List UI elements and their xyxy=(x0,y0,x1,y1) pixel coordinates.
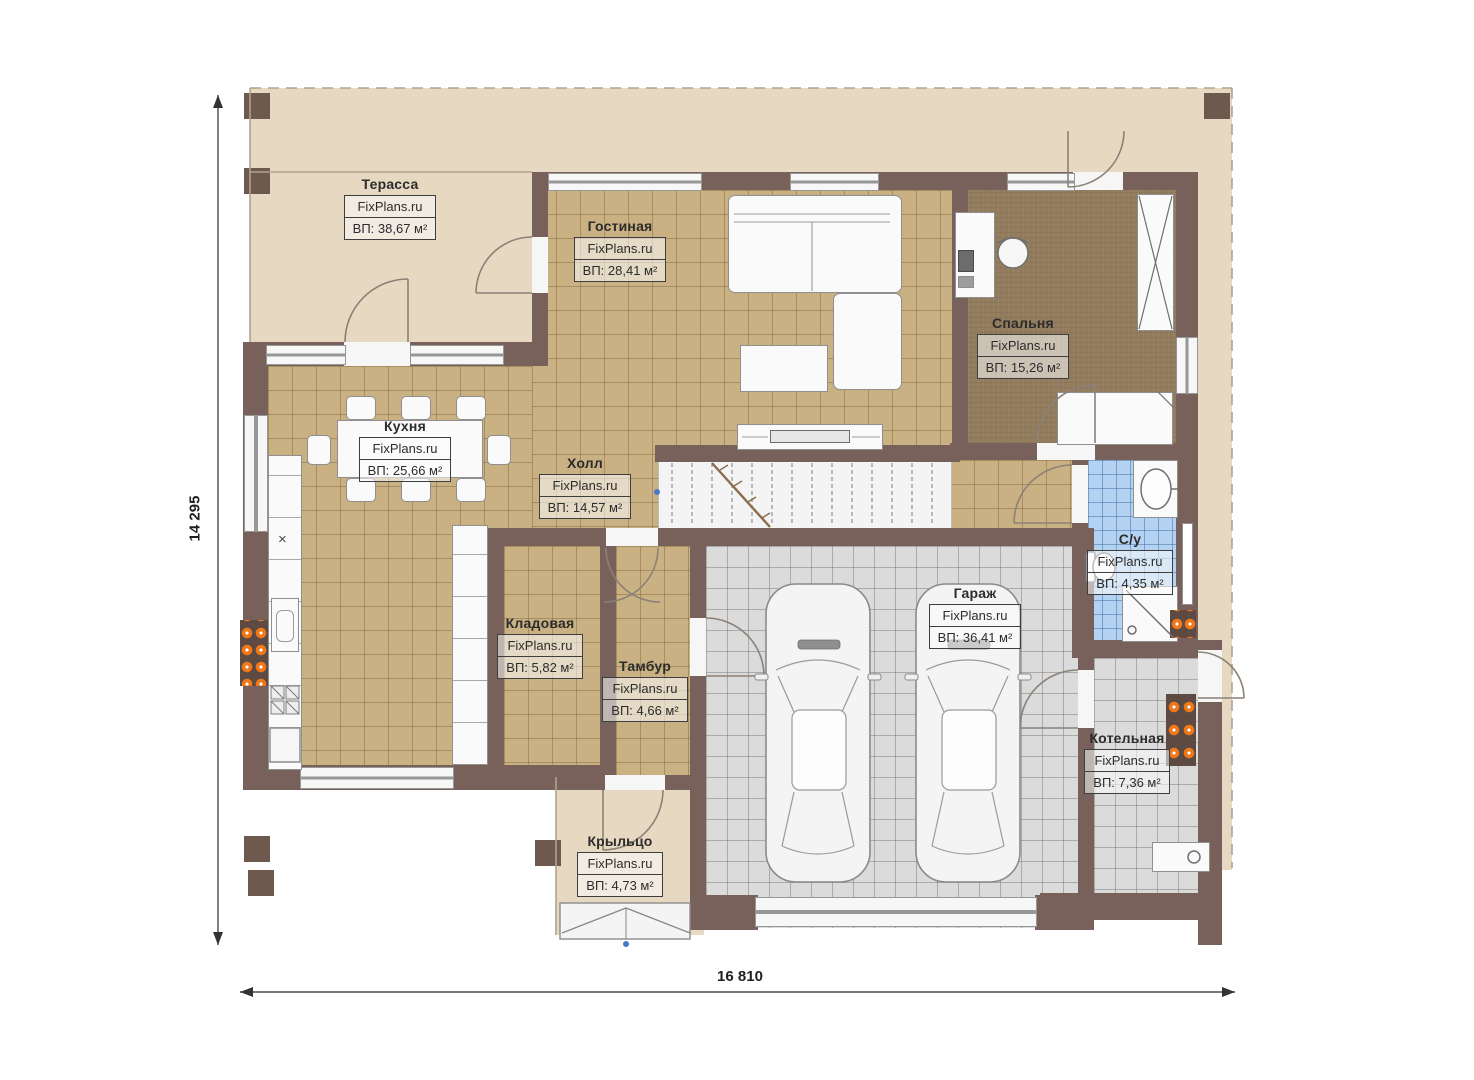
window xyxy=(266,345,346,365)
window xyxy=(300,767,454,789)
coffee-table xyxy=(740,345,828,392)
watermark: FixPlans.ru xyxy=(930,605,1021,626)
room-label-box: FixPlans.ru ВП: 28,41 м² xyxy=(574,237,667,282)
wall-boiler-bottom xyxy=(1040,893,1222,920)
room-label-porch: Крыльцо FixPlans.ru ВП: 4,73 м² xyxy=(540,833,700,897)
room-label-living: Гостиная FixPlans.ru ВП: 28,41 м² xyxy=(540,218,700,282)
watermark: FixPlans.ru xyxy=(345,196,436,217)
room-label-box: FixPlans.ru ВП: 15,26 м² xyxy=(977,334,1070,379)
room-name: Холл xyxy=(505,455,665,471)
room-label-box: FixPlans.ru ВП: 4,35 м² xyxy=(1087,550,1172,595)
room-name: Котельная xyxy=(1047,730,1207,746)
watermark: FixPlans.ru xyxy=(603,678,686,699)
watermark: FixPlans.ru xyxy=(578,853,661,874)
room-label-wc: С/у FixPlans.ru ВП: 4,35 м² xyxy=(1050,531,1210,595)
dimension-width: 16 810 xyxy=(705,968,775,985)
room-name: Крыльцо xyxy=(540,833,700,849)
watermark: FixPlans.ru xyxy=(978,335,1069,356)
watermark: FixPlans.ru xyxy=(498,635,581,656)
room-area: ВП: 28,41 м² xyxy=(575,259,666,281)
wall-hall-bottom xyxy=(488,528,1094,546)
desk-printer xyxy=(958,250,974,272)
door-opening-terrace xyxy=(344,342,410,366)
wall-left xyxy=(243,342,268,790)
watermark: FixPlans.ru xyxy=(540,475,631,496)
room-label-box: FixPlans.ru ВП: 38,67 м² xyxy=(344,195,437,240)
watermark: FixPlans.ru xyxy=(360,438,451,459)
window xyxy=(1007,173,1075,191)
door-opening-hall-vestibule xyxy=(606,528,658,546)
room-label-vestibule: Тамбур FixPlans.ru ВП: 4,66 м² xyxy=(565,658,725,722)
door-opening-front xyxy=(605,775,665,790)
room-label-kitchen: Кухня FixPlans.ru ВП: 25,66 м² xyxy=(325,418,485,482)
room-label-box: FixPlans.ru ВП: 14,57 м² xyxy=(539,474,632,519)
door-opening-bathroom xyxy=(1072,465,1088,523)
room-area: ВП: 36,41 м² xyxy=(930,626,1021,648)
column xyxy=(1204,93,1230,119)
sofa xyxy=(728,195,902,293)
room-name: Терасса xyxy=(310,176,470,192)
room-name: Спальня xyxy=(943,315,1103,331)
room-area: ВП: 38,67 м² xyxy=(345,217,436,239)
wall-right-top xyxy=(1176,190,1198,337)
watermark: FixPlans.ru xyxy=(1085,750,1168,771)
room-label-box: FixPlans.ru ВП: 7,36 м² xyxy=(1084,749,1169,794)
watermark: FixPlans.ru xyxy=(575,238,666,259)
room-label-box: FixPlans.ru ВП: 36,41 м² xyxy=(929,604,1022,649)
room-label-hall: Холл FixPlans.ru ВП: 14,57 м² xyxy=(505,455,665,519)
door-opening-garage-boiler xyxy=(1078,670,1094,728)
sofa-chaise xyxy=(833,293,902,390)
room-name: Гараж xyxy=(895,585,1055,601)
column xyxy=(244,93,270,119)
door-opening-top xyxy=(1073,172,1123,190)
room-area: ВП: 15,26 м² xyxy=(978,356,1069,378)
room-label-box: FixPlans.ru ВП: 4,66 м² xyxy=(602,677,687,722)
cooktop-mark: × xyxy=(278,532,287,547)
staircase xyxy=(658,460,952,530)
door-opening-bedroom xyxy=(1037,443,1095,460)
tv xyxy=(770,430,850,443)
room-label-box: FixPlans.ru ВП: 4,73 м² xyxy=(577,852,662,897)
room-label-garage: Гараж FixPlans.ru ВП: 36,41 м² xyxy=(895,585,1055,649)
boiler-unit xyxy=(1152,842,1210,872)
room-name: Кухня xyxy=(325,418,485,434)
desk-item xyxy=(958,276,974,288)
dimension-height: 14 295 xyxy=(187,484,204,554)
room-area: ВП: 4,73 м² xyxy=(578,874,661,896)
room-label-terrace: Терасса FixPlans.ru ВП: 38,67 м² xyxy=(310,176,470,240)
wall-right-mid xyxy=(1176,392,1198,460)
room-name: Кладовая xyxy=(460,615,620,631)
chair xyxy=(346,396,376,420)
window xyxy=(548,173,702,191)
room-name: С/у xyxy=(1050,531,1210,547)
floor-plan: × xyxy=(0,0,1474,1080)
hall-right-floor xyxy=(950,460,1088,528)
room-area: ВП: 4,66 м² xyxy=(603,699,686,721)
room-name: Гостиная xyxy=(540,218,700,234)
window xyxy=(1176,337,1198,394)
room-label-boiler: Котельная FixPlans.ru ВП: 7,36 м² xyxy=(1047,730,1207,794)
chair xyxy=(456,396,486,420)
room-area: ВП: 14,57 м² xyxy=(540,496,631,518)
room-label-box: FixPlans.ru ВП: 25,66 м² xyxy=(359,437,452,482)
column xyxy=(244,836,270,862)
radiator-bathroom xyxy=(1170,610,1196,638)
room-name: Тамбур xyxy=(565,658,725,674)
window xyxy=(244,415,268,532)
bed xyxy=(1057,392,1173,445)
wardrobe xyxy=(1137,194,1174,331)
chair xyxy=(401,396,431,420)
column xyxy=(244,168,270,194)
room-area: ВП: 25,66 м² xyxy=(360,459,451,481)
door-opening-boiler-exterior xyxy=(1198,650,1222,702)
watermark: FixPlans.ru xyxy=(1088,551,1171,572)
window xyxy=(790,173,879,191)
kitchen-sink-basin xyxy=(276,610,294,642)
room-area: ВП: 4,35 м² xyxy=(1088,572,1171,594)
garage-door xyxy=(755,897,1037,927)
radiator-kitchen xyxy=(240,620,268,686)
wall-garage-stub-left xyxy=(704,895,758,930)
column xyxy=(248,870,274,896)
bathroom-sink-counter xyxy=(1133,460,1178,518)
room-label-bedroom: Спальня FixPlans.ru ВП: 15,26 м² xyxy=(943,315,1103,379)
window xyxy=(410,345,504,365)
room-area: ВП: 7,36 м² xyxy=(1085,771,1168,793)
